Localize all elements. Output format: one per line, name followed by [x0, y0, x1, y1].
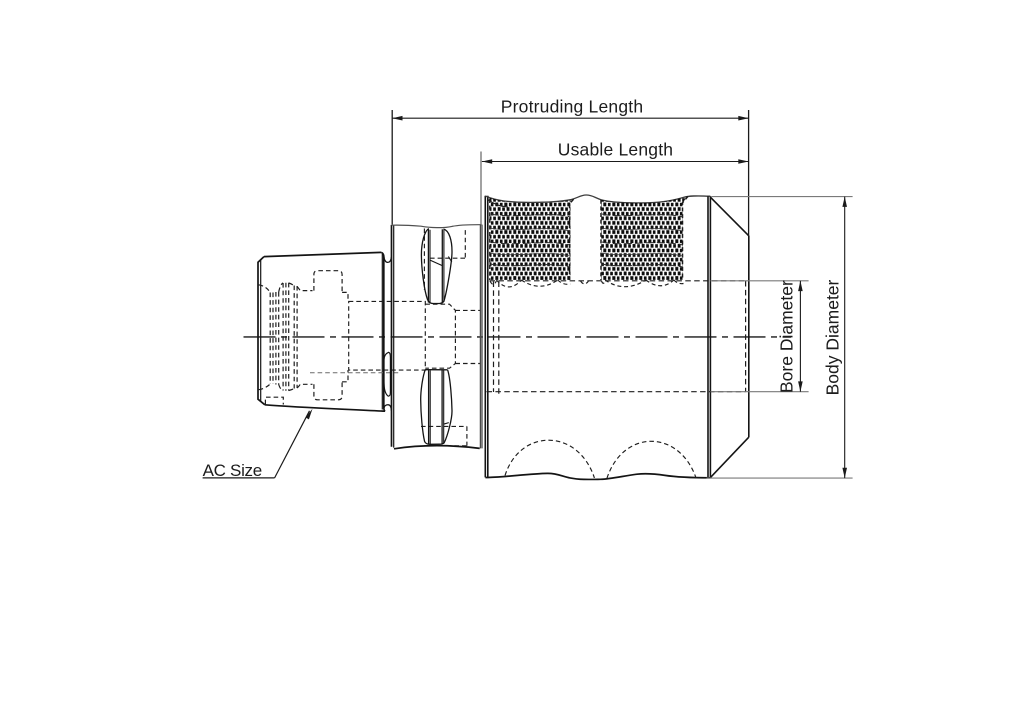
svg-text:Bore Diameter: Bore Diameter	[777, 280, 797, 393]
svg-text:Body Diameter: Body Diameter	[823, 279, 843, 395]
svg-text:AC Size: AC Size	[203, 461, 262, 480]
svg-text:Usable Length: Usable Length	[558, 140, 673, 160]
svg-text:Protruding Length: Protruding Length	[501, 97, 644, 117]
